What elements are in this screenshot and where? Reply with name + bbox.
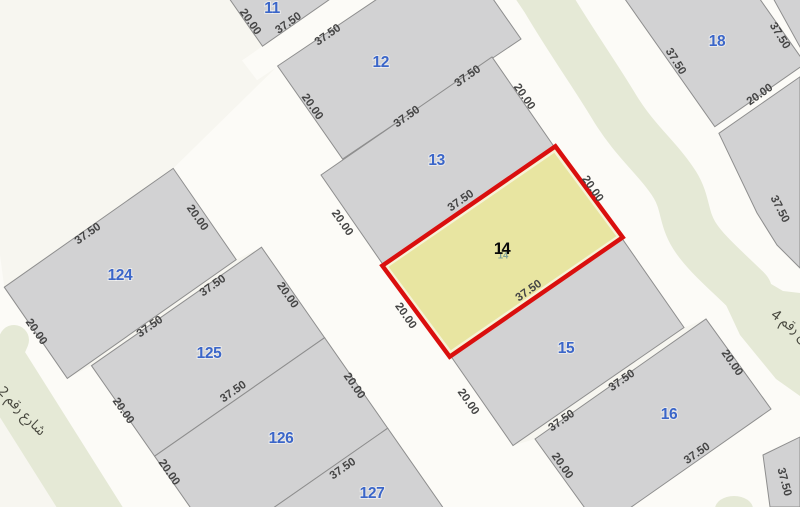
svg-text:11: 11 <box>264 0 280 17</box>
svg-text:127: 127 <box>360 485 385 502</box>
svg-text:15: 15 <box>558 340 575 357</box>
svg-text:18: 18 <box>709 33 726 50</box>
svg-text:16: 16 <box>661 406 678 423</box>
svg-text:12: 12 <box>372 54 388 71</box>
svg-text:14: 14 <box>494 240 512 258</box>
svg-text:126: 126 <box>269 430 294 447</box>
svg-text:13: 13 <box>428 152 445 169</box>
svg-text:124: 124 <box>108 267 133 284</box>
svg-text:125: 125 <box>197 345 222 362</box>
